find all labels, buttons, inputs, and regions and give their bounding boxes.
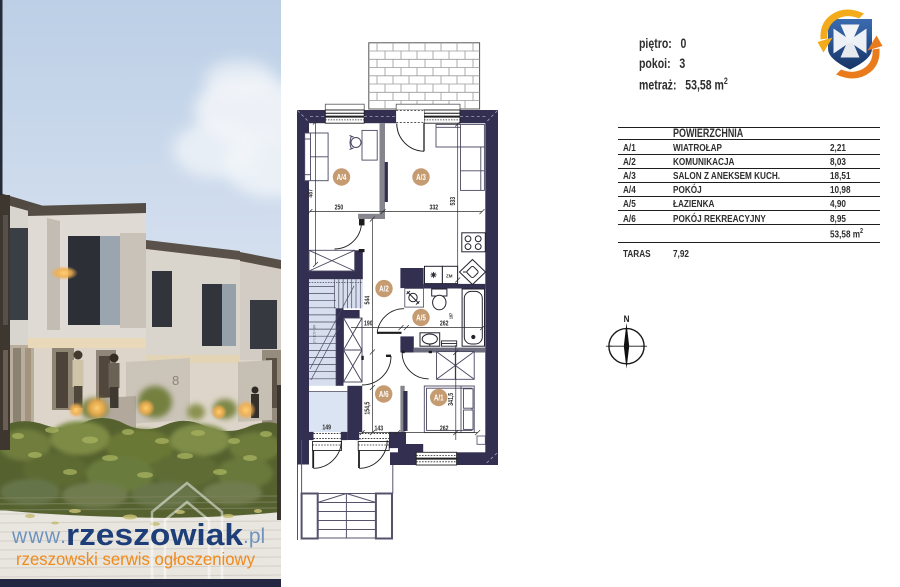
svg-text:250: 250 xyxy=(335,204,344,212)
svg-text:262: 262 xyxy=(440,320,449,328)
svg-text:262: 262 xyxy=(440,425,449,433)
svg-text:A/3: A/3 xyxy=(416,174,426,182)
svg-text:A/1: A/1 xyxy=(434,395,444,403)
svg-text:332: 332 xyxy=(429,204,438,212)
svg-text:A/6: A/6 xyxy=(379,391,389,399)
svg-text:154,5: 154,5 xyxy=(364,401,372,414)
svg-text:533: 533 xyxy=(449,196,457,205)
svg-text:341,5: 341,5 xyxy=(447,392,455,405)
svg-text:ZM: ZM xyxy=(446,273,453,278)
svg-text:149: 149 xyxy=(322,424,331,432)
svg-text:A/5: A/5 xyxy=(416,315,426,323)
svg-text:487: 487 xyxy=(307,189,315,198)
svg-text:17 x 17,9 = 304: 17 x 17,9 = 304 xyxy=(312,324,317,343)
svg-text:A/2: A/2 xyxy=(379,286,389,294)
svg-text:544: 544 xyxy=(364,295,372,304)
svg-text:N: N xyxy=(624,313,630,324)
svg-text:187: 187 xyxy=(448,312,454,319)
svg-text:A/4: A/4 xyxy=(337,174,347,182)
svg-text:190: 190 xyxy=(364,320,373,328)
svg-text:143: 143 xyxy=(374,425,383,433)
